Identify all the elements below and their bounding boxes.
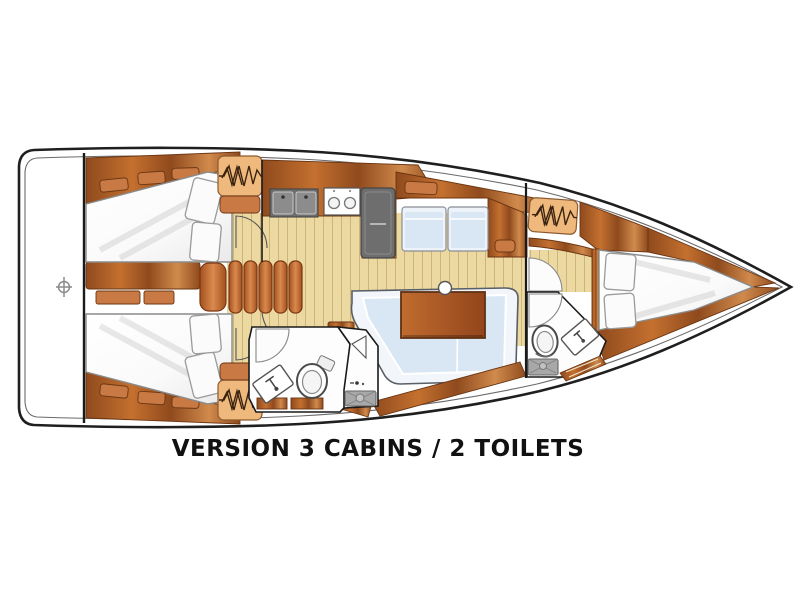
locker-strip [291, 398, 323, 409]
mast-post [439, 282, 452, 295]
drawer [96, 291, 140, 304]
locker-under-hatch [220, 196, 260, 213]
saloon-table [401, 292, 485, 338]
companionway-steps [200, 261, 302, 313]
pillow [604, 253, 636, 291]
shower-pan-icon [528, 359, 558, 375]
yacht-layout-diagram: VERSION 3 CABINS / 2 TOILETS [0, 0, 800, 600]
locker [405, 181, 438, 195]
pillow [189, 314, 221, 354]
double-sink-icon [270, 189, 318, 217]
pillow [604, 293, 636, 329]
aft-head [249, 327, 350, 412]
fridge-icon [361, 188, 395, 258]
floorplan-canvas [0, 0, 800, 600]
locker [495, 240, 515, 252]
caption: VERSION 3 CABINS / 2 TOILETS [0, 436, 756, 462]
pillow [189, 222, 221, 262]
drawer [144, 291, 174, 304]
stove-icon [324, 188, 360, 215]
settee-cushions [402, 207, 488, 251]
bed-foot-trim [592, 249, 599, 332]
shower-pan-icon [345, 391, 376, 406]
center-beam [86, 262, 200, 289]
